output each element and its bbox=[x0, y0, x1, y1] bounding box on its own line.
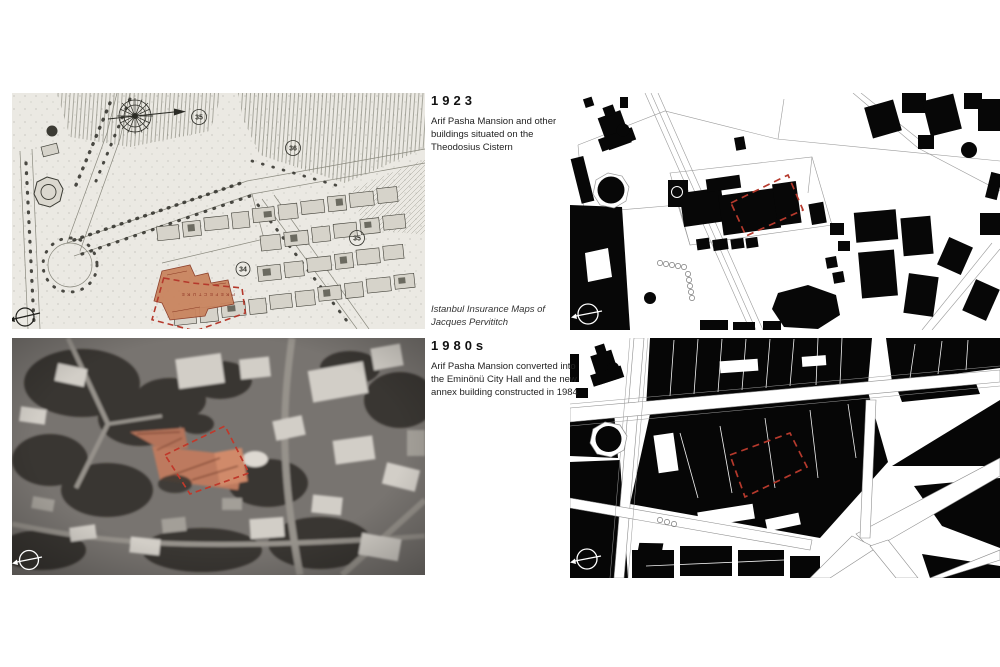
aerial-1980s bbox=[12, 338, 425, 575]
cistern-octagon bbox=[590, 422, 627, 457]
year-heading-1980s: 1980s bbox=[431, 338, 583, 353]
circled-number: 35 bbox=[195, 115, 203, 122]
pervititch-map: 35 36 35 34 PREFECTURE bbox=[12, 93, 425, 329]
aerial-vignette bbox=[12, 338, 425, 575]
figure-ground-1980s-panel bbox=[570, 338, 1000, 578]
turbe-dome bbox=[47, 126, 58, 137]
figure-ground-1923-panel bbox=[570, 93, 1000, 330]
caption-text-1923: Arif Pasha Mansion and other buildings s… bbox=[431, 115, 583, 154]
courtyard-notch bbox=[585, 248, 612, 282]
figure-ground-1980s bbox=[570, 338, 1000, 578]
caption-block-1980s: 1980s Arif Pasha Mansion converted into … bbox=[431, 338, 583, 399]
circled-number: 36 bbox=[289, 146, 297, 153]
source-caption-text: Istanbul Insurance Maps of Jacques Pervi… bbox=[431, 303, 559, 330]
year-heading-1923: 1923 bbox=[431, 93, 583, 108]
circled-number: 34 bbox=[239, 267, 247, 274]
street-label: PREFECTURE bbox=[179, 292, 235, 297]
aerial-1980s-panel bbox=[12, 338, 425, 575]
pervititch-map-panel: 35 36 35 34 PREFECTURE bbox=[12, 93, 425, 329]
cistern-octagon bbox=[593, 173, 629, 208]
caption-text-1980s: Arif Pasha Mansion converted into the Em… bbox=[431, 360, 583, 399]
circled-number: 35 bbox=[353, 236, 361, 243]
source-caption: Istanbul Insurance Maps of Jacques Pervi… bbox=[431, 303, 559, 330]
figure-ground-1923 bbox=[570, 93, 1000, 330]
caption-block-1923: 1923 Arif Pasha Mansion and other buildi… bbox=[431, 93, 583, 154]
